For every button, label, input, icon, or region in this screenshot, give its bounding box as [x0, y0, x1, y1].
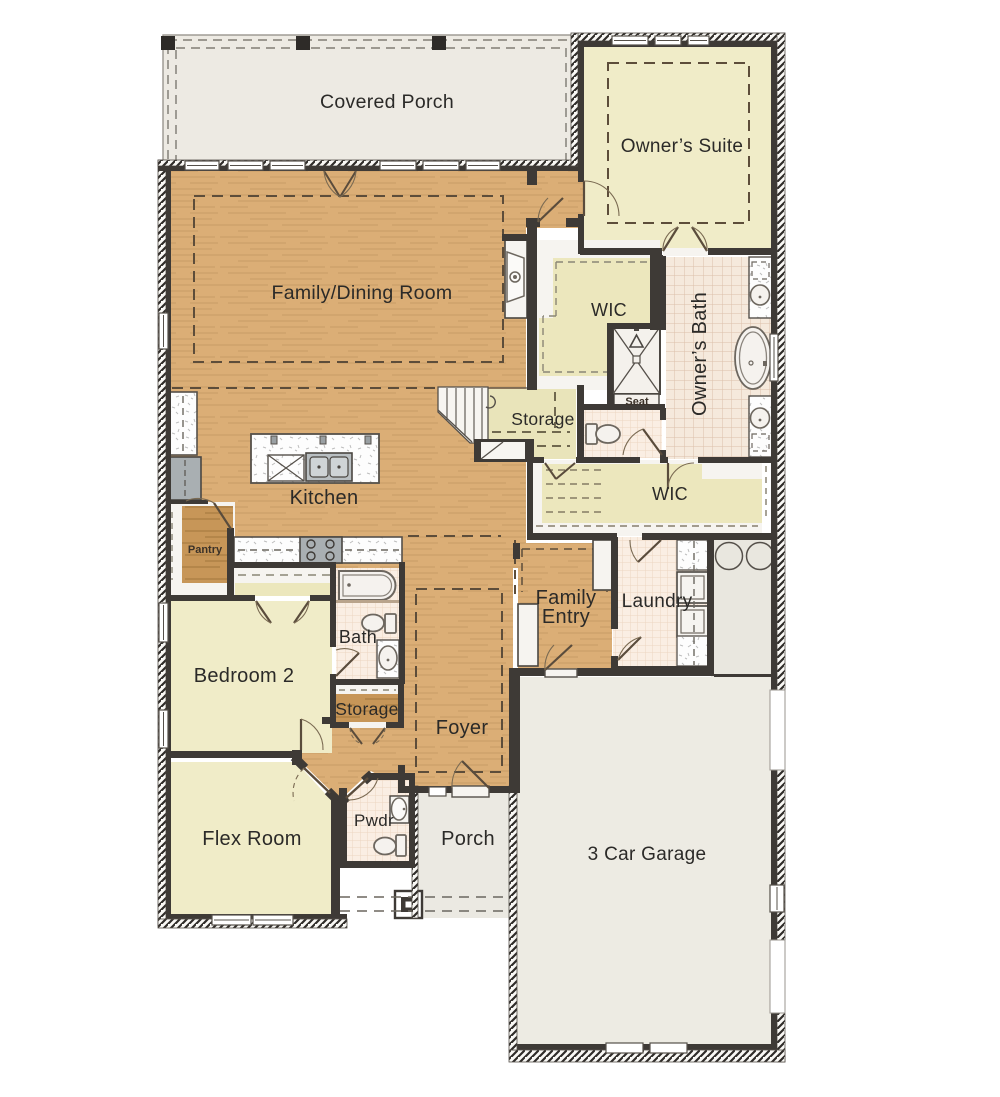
- svg-text:Family/Dining Room: Family/Dining Room: [272, 282, 453, 304]
- svg-text:Storage: Storage: [335, 699, 398, 719]
- svg-text:3 Car Garage: 3 Car Garage: [588, 844, 707, 865]
- svg-text:Pwdr: Pwdr: [354, 811, 394, 830]
- svg-text:Flex Room: Flex Room: [202, 828, 301, 850]
- svg-text:Foyer: Foyer: [436, 717, 489, 739]
- svg-text:Pantry: Pantry: [188, 544, 223, 556]
- svg-text:Bath: Bath: [339, 627, 377, 647]
- svg-text:Covered Porch: Covered Porch: [320, 91, 454, 113]
- svg-text:Laundry: Laundry: [622, 591, 693, 612]
- svg-text:Seat: Seat: [625, 396, 649, 408]
- svg-text:Kitchen: Kitchen: [290, 487, 359, 509]
- svg-text:WIC: WIC: [652, 484, 688, 504]
- svg-text:Porch: Porch: [441, 828, 495, 850]
- svg-text:WIC: WIC: [591, 300, 627, 320]
- svg-text:Storage: Storage: [511, 409, 574, 429]
- svg-text:Bedroom 2: Bedroom 2: [194, 665, 295, 687]
- svg-text:Owner’s Bath: Owner’s Bath: [689, 292, 711, 416]
- svg-text:Entry: Entry: [542, 606, 590, 628]
- svg-text:Owner’s Suite: Owner’s Suite: [621, 136, 744, 157]
